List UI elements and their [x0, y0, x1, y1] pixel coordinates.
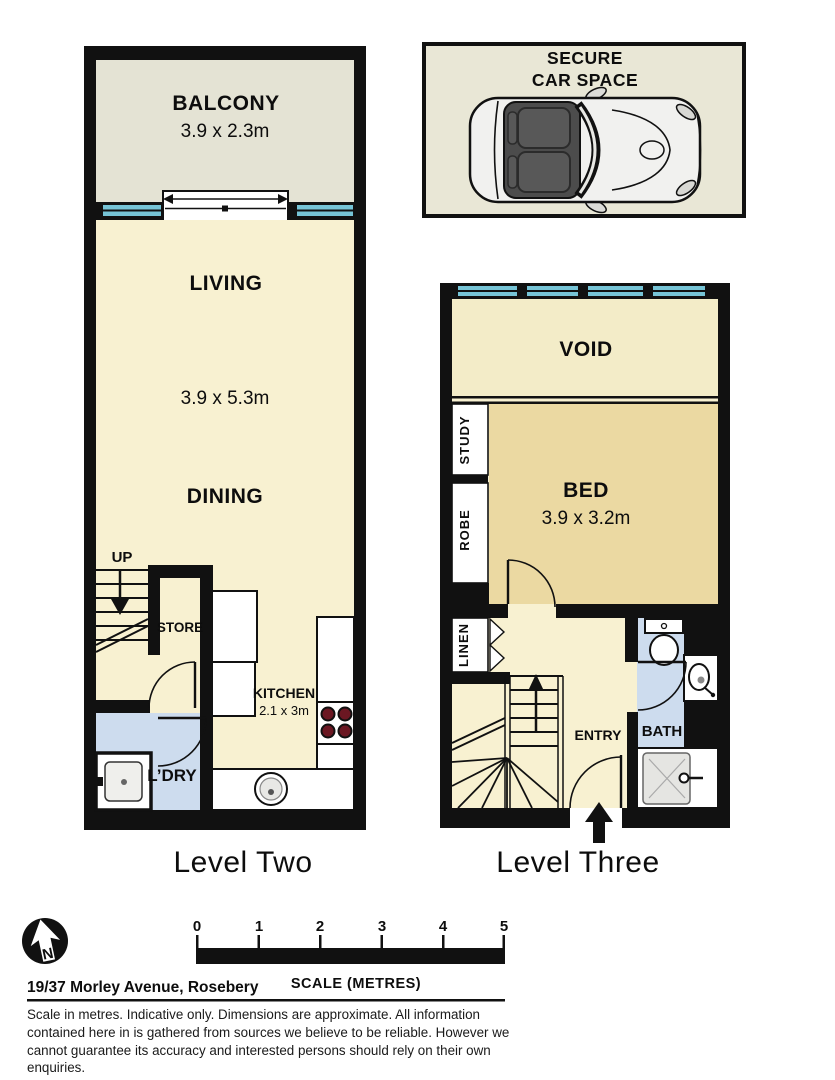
linen-label: LINEN	[456, 623, 471, 667]
l2-right-wall	[354, 46, 366, 830]
scale-tick-3: 3	[378, 918, 386, 935]
kitchen-counter-right	[317, 617, 354, 770]
bed-room	[489, 404, 718, 604]
living-dining-dims: 3.9 x 5.3m	[181, 388, 270, 409]
study-label: STUDY	[457, 415, 472, 464]
footer-rule	[27, 999, 505, 1002]
burner	[339, 708, 352, 721]
kitchen-sink	[255, 773, 287, 805]
l2-window-right-line	[297, 210, 353, 212]
shower	[637, 748, 718, 808]
void-edge-line	[452, 396, 718, 399]
burner	[339, 725, 352, 738]
level-two-plan: BALCONY 3.9 x 2.3m LIVING 3.9 x 5.3m DIN…	[84, 46, 366, 830]
burner	[322, 708, 335, 721]
balcony-label: BALCONY	[172, 92, 279, 115]
kitchen-counter-upper	[212, 591, 257, 662]
l2-bottom-wall	[84, 810, 366, 830]
void-edge-line2	[452, 402, 718, 405]
bed-wall-left	[440, 604, 508, 618]
level-three-plan: VOID BED 3.9 x 3.2m STUDY ROBE LINEN	[440, 283, 730, 843]
level-three-title: Level Three	[496, 846, 659, 879]
scale-tick-0: 0	[193, 918, 201, 935]
l3-right-wall	[718, 283, 730, 828]
robe-bottom-wall	[440, 583, 489, 604]
balcony-dims: 3.9 x 2.3m	[181, 121, 270, 142]
up-label: UP	[112, 549, 133, 566]
kitchen-label: KITCHEN	[253, 685, 315, 701]
car-space-label-2: CAR SPACE	[532, 70, 638, 90]
laundry-trough	[94, 753, 151, 810]
closet-divider	[452, 475, 488, 483]
scale-tick-5: 5	[500, 918, 508, 935]
floorplan-page: BALCONY 3.9 x 2.3m LIVING 3.9 x 5.3m DIN…	[0, 0, 835, 1080]
stair-side-wall	[148, 565, 160, 655]
car-space-label-1: SECURE	[547, 48, 623, 68]
entry-label: ENTRY	[575, 727, 623, 743]
level-two-title: Level Two	[173, 846, 312, 879]
bath-label: BATH	[642, 723, 683, 740]
store-label: STORE	[157, 620, 203, 635]
bath-wall-chunk-b	[684, 701, 718, 748]
laundry-top-wall	[84, 700, 150, 713]
bed-dims: 3.9 x 3.2m	[542, 508, 631, 529]
scale-caption: SCALE (METRES)	[291, 976, 421, 992]
l2-top-wall	[84, 46, 366, 60]
laundry-label: L’DRY	[147, 766, 197, 785]
living-label: LIVING	[189, 272, 262, 295]
car-illustration	[470, 85, 701, 215]
scale-tick-1: 1	[255, 918, 263, 935]
void-label: VOID	[559, 338, 612, 361]
l2-window-left-line	[103, 210, 161, 212]
floorplan-graphic: BALCONY 3.9 x 2.3m LIVING 3.9 x 5.3m DIN…	[0, 0, 835, 1080]
bath-wall-chunk-a	[684, 618, 718, 655]
kitchen-counter-lower	[212, 662, 255, 716]
kitchen-dims: 2.1 x 3m	[259, 703, 309, 718]
scale-tick-2: 2	[316, 918, 324, 935]
sliding-door	[163, 191, 288, 221]
address: 19/37 Morley Avenue, Rosebery	[27, 979, 259, 996]
dining-label: DINING	[187, 485, 264, 508]
bed-label: BED	[563, 479, 609, 502]
scale-tick-4: 4	[439, 918, 448, 935]
bed-wall-right	[556, 604, 730, 618]
l3-left-wall	[440, 283, 452, 828]
burner	[322, 725, 335, 738]
north-arrow: N	[22, 916, 68, 965]
car-space: SECURE CAR SPACE	[424, 44, 744, 216]
bath-wall-upper	[625, 618, 638, 662]
stair-top-wall	[440, 672, 510, 684]
robe-label: ROBE	[457, 509, 472, 551]
disclaimer-text: Scale in metres. Indicative only. Dimens…	[27, 1006, 535, 1077]
